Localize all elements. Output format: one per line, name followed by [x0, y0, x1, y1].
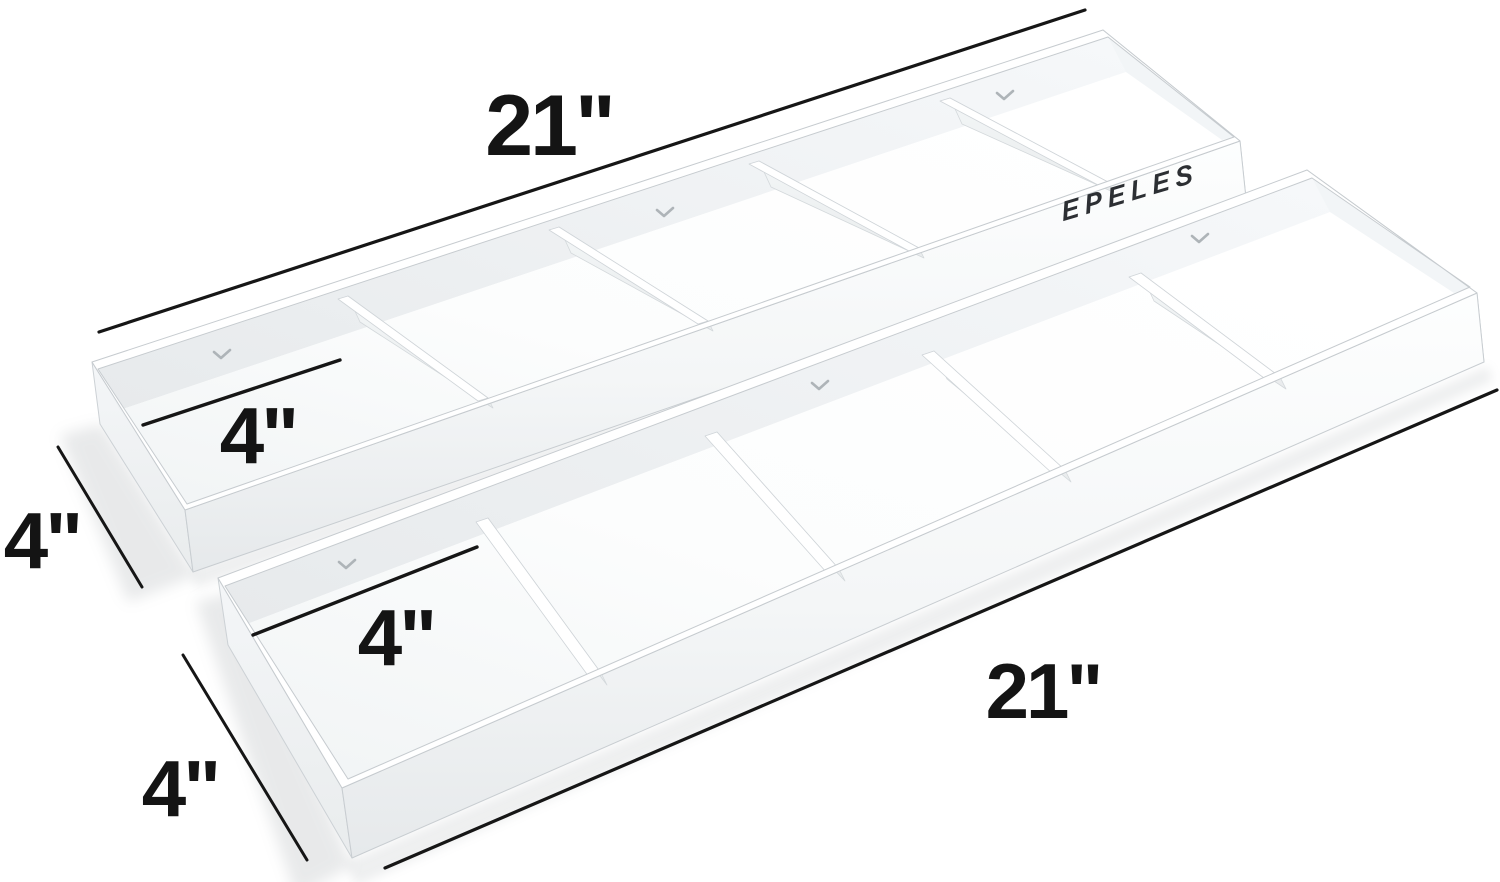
product-illustration: EPELES: [0, 0, 1500, 882]
bottom-length-dimension-label: 21": [986, 647, 1101, 735]
bottom-compartment-dimension-label: 4": [358, 593, 434, 682]
bottom-depth-dimension-label: 4": [142, 744, 218, 833]
product-photo: EPELES: [0, 0, 1500, 882]
top-length-dimension-label: 21": [485, 78, 612, 174]
top-compartment-dimension-label: 4": [220, 391, 296, 480]
top-depth-dimension-label: 4": [4, 496, 80, 585]
